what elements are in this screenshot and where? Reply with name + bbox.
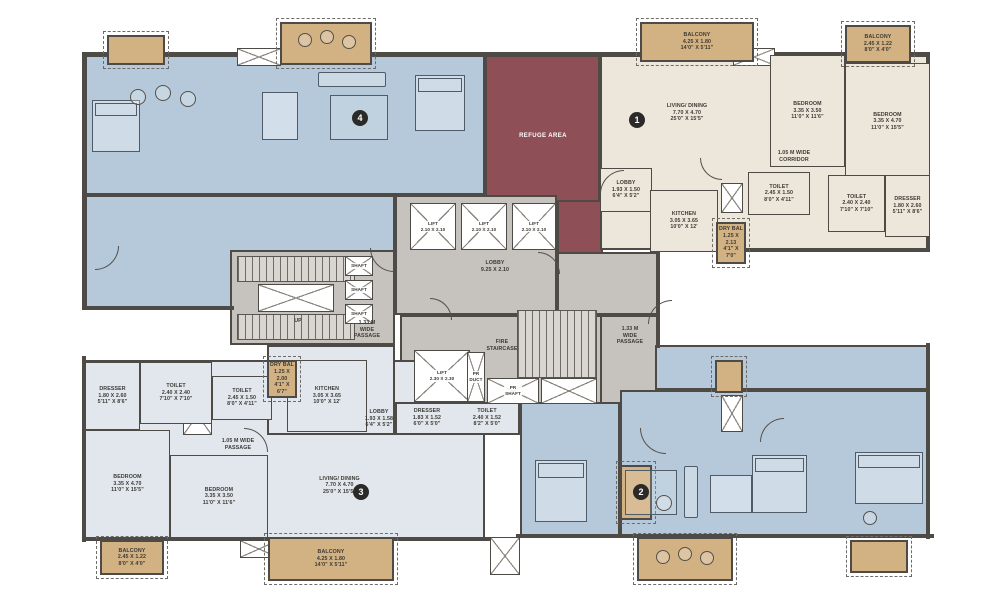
room-label: DRESSER1.83 X 1.526'0" X 5'0" bbox=[413, 408, 441, 428]
sofa-icon bbox=[684, 466, 698, 518]
room-label: LIVING/ DINING7.70 X 4.7025'0" X 15'5" bbox=[667, 103, 708, 123]
room-label: 1.33 MWIDEPASSAGE bbox=[617, 326, 643, 346]
room-fire-staircase-label: FIRESTAIRCASE bbox=[476, 336, 528, 356]
chair-icon bbox=[656, 495, 672, 511]
room-label: BEDROOM3.35 X 4.7011'0" X 15'5" bbox=[111, 474, 144, 494]
balcony-unit2-dry-balcony-upper bbox=[715, 360, 743, 393]
duct-box-2 bbox=[237, 48, 281, 66]
room-label: BEDROOM3.35 X 3.5011'0" X 11'6" bbox=[203, 487, 235, 507]
unit4-bottom-wall bbox=[82, 306, 234, 310]
room-label: LIFT2.10 X 2.10 bbox=[420, 221, 447, 232]
room-label: BALCONY2.45 X 1.228'0" X 4'0" bbox=[118, 548, 146, 568]
room-refuge-area-label: REFUGE AREA bbox=[488, 130, 598, 144]
bed-icon bbox=[415, 75, 465, 131]
room-unit3-toilet-1: TOILET2.40 X 2.407'10" X 7'10" bbox=[140, 362, 212, 424]
chair-icon bbox=[342, 35, 356, 49]
room-unit3-dresser-2: DRESSER1.83 X 1.526'0" X 5'0" bbox=[398, 398, 456, 438]
room-unit3-living-dining: LIVING/ DINING7.70 X 4.7025'0" X 15'5" bbox=[252, 448, 427, 523]
zone-refuge-area-main bbox=[485, 55, 600, 202]
room-label: DRESSER1.80 X 2.605'11" X 8'6" bbox=[98, 386, 128, 406]
room-label: BALCONY4.25 X 1.8014'0" X 5'11" bbox=[315, 549, 348, 569]
room-label: DRESSER1.80 X 2.605'11" X 8'6" bbox=[893, 196, 923, 216]
chair-icon bbox=[863, 511, 877, 525]
pr-duct: PRDUCT bbox=[467, 352, 485, 402]
balcony-unit4-balcony-left bbox=[107, 35, 165, 65]
room-label: TOILET2.45 X 1.508'0" X 4'11" bbox=[227, 388, 257, 408]
room-label: TOILET2.40 X 2.407'10" X 7'10" bbox=[840, 194, 873, 214]
room-label: LIFT2.10 X 2.10 bbox=[521, 221, 548, 232]
room-unit3-toilet-2: TOILET2.45 X 1.508'0" X 4'11" bbox=[212, 376, 272, 420]
duct-box-8 bbox=[721, 395, 743, 432]
balcony-unit3-dry-balcony: DRY BAL1.25 X 2.004'1" X 6'7" bbox=[267, 360, 297, 398]
duct-box-7 bbox=[721, 183, 743, 213]
bed-icon bbox=[92, 100, 140, 152]
room-label: KITCHEN3.05 X 3.6510'0" X 12' bbox=[670, 211, 698, 231]
room-label: REFUGE AREA bbox=[519, 133, 567, 141]
unit-number-marker: 1 bbox=[629, 112, 645, 128]
room-unit1-toilet-2: TOILET2.40 X 2.407'10" X 7'10" bbox=[828, 175, 885, 232]
room-label: 1.05 M WIDECORRIDOR bbox=[778, 150, 811, 163]
room-core-passage-right-label: 1.33 MWIDEPASSAGE bbox=[602, 320, 658, 352]
room-label: LOBBY1.93 X 1.586'4" X 5'2" bbox=[365, 409, 393, 429]
lift-shaft-lift-2: LIFT2.10 X 2.10 bbox=[461, 203, 507, 250]
room-unit1-kitchen: KITCHEN3.05 X 3.6510'0" X 12' bbox=[650, 190, 718, 252]
duct-box-5 bbox=[490, 537, 520, 575]
room-unit3-dresser: DRESSER1.80 X 2.605'11" X 8'6" bbox=[85, 362, 140, 430]
balcony-unit3-balcony-mid: BALCONY4.25 X 1.8014'0" X 5'11" bbox=[268, 537, 394, 581]
balcony-unit1-dry-balcony: DRY BAL1.25 X 2.134'1" X 7'0" bbox=[716, 222, 746, 264]
left-upper-wall bbox=[82, 52, 86, 310]
floor-plan: LIFT2.10 X 2.10LIFT2.10 X 2.10LIFT2.10 X… bbox=[0, 0, 1000, 600]
main-stair-upper-flight bbox=[237, 256, 355, 282]
room-label: UP bbox=[294, 318, 302, 325]
room-unit3-lobby: LOBBY1.93 X 1.586'4" X 5'2" bbox=[355, 398, 403, 440]
chair-icon bbox=[656, 550, 670, 564]
right-lower-wall bbox=[926, 343, 930, 539]
unit-number-marker: 4 bbox=[352, 110, 368, 126]
duct-box-1 bbox=[541, 378, 597, 404]
shaft-1: SHAFT bbox=[345, 256, 373, 276]
room-label: PRSHAFT bbox=[504, 385, 522, 396]
bed-icon bbox=[752, 455, 807, 513]
room-label: BEDROOM3.35 X 3.5011'0" X 11'6" bbox=[791, 101, 823, 121]
room-label: BALCONY2.45 X 1.228'0" X 4'0" bbox=[864, 34, 892, 54]
dining-table-icon bbox=[262, 92, 298, 140]
zone-unit2-upper-wing bbox=[655, 345, 930, 390]
unit-number-marker: 3 bbox=[353, 484, 369, 500]
room-unit1-bedroom-2: BEDROOM3.35 X 4.7011'0" X 15'5" bbox=[845, 63, 930, 180]
room-label: 1.33 MWIDEPASSAGE bbox=[354, 320, 380, 340]
room-label: TOILET2.40 X 2.407'10" X 7'10" bbox=[160, 383, 193, 403]
room-label: BEDROOM3.35 X 4.7011'0" X 15'5" bbox=[871, 112, 904, 132]
room-label: SHAFT bbox=[350, 287, 368, 293]
lift-shaft-lift-1: LIFT2.10 X 2.10 bbox=[410, 203, 456, 250]
chair-icon bbox=[678, 547, 692, 561]
balcony-unit3-balcony-left: BALCONY2.45 X 1.228'0" X 4'0" bbox=[100, 540, 164, 575]
bed-icon bbox=[855, 452, 923, 504]
chair-icon bbox=[298, 33, 312, 47]
room-unit3-bedroom-1: BEDROOM3.35 X 4.7011'0" X 15'5" bbox=[85, 430, 170, 538]
stair-landing bbox=[258, 284, 334, 312]
dining-table-icon bbox=[710, 475, 752, 513]
chair-icon bbox=[130, 89, 146, 105]
chair-icon bbox=[155, 85, 171, 101]
balcony-unit2-balcony-right bbox=[850, 540, 908, 573]
room-label: BALCONY4.25 X 1.8014'0" X 5'11" bbox=[681, 32, 714, 52]
balcony-unit1-balcony-top: BALCONY4.25 X 1.8014'0" X 5'11" bbox=[640, 22, 754, 62]
bed-icon bbox=[535, 460, 587, 522]
zone-refuge-area-leg bbox=[557, 200, 603, 254]
room-unit1-corridor: 1.05 M WIDECORRIDOR bbox=[748, 148, 840, 166]
room-up-label: UP bbox=[286, 316, 310, 326]
room-label: TOILET2.40 X 1.528'2" X 5'0" bbox=[473, 408, 501, 428]
chair-icon bbox=[320, 30, 334, 44]
room-label: FIRESTAIRCASE bbox=[486, 339, 517, 352]
zone-core-lift-lobby-b bbox=[557, 252, 660, 315]
room-unit3-toilet-3: TOILET2.40 X 1.528'2" X 5'0" bbox=[456, 398, 518, 438]
room-label: DRY BAL1.25 X 2.134'1" X 7'0" bbox=[718, 226, 744, 259]
lift-shaft-lift-4: LIFT2.30 X 2.30 bbox=[414, 350, 470, 402]
room-unit1-dresser: DRESSER1.80 X 2.605'11" X 8'6" bbox=[885, 175, 930, 237]
room-unit1-toilet-1: TOILET2.45 X 1.508'0" X 4'11" bbox=[748, 172, 810, 215]
room-label: PRDUCT bbox=[468, 371, 483, 382]
chair-icon bbox=[700, 551, 714, 565]
sofa-icon bbox=[318, 72, 386, 87]
room-label: LOBBY9.25 X 2.10 bbox=[481, 260, 509, 273]
unit-number-marker: 2 bbox=[633, 484, 649, 500]
fire-stair-flight bbox=[517, 310, 597, 378]
room-label: SHAFT bbox=[350, 263, 368, 269]
room-label: DRY BAL1.25 X 2.004'1" X 6'7" bbox=[269, 362, 295, 395]
room-label: KITCHEN3.05 X 3.6510'0" X 12' bbox=[313, 386, 341, 406]
shaft-2: SHAFT bbox=[345, 280, 373, 300]
room-label: LIFT2.10 X 2.10 bbox=[471, 221, 498, 232]
room-core-passage-left: 1.33 MWIDEPASSAGE bbox=[340, 314, 394, 346]
lift-shaft-lift-3: LIFT2.10 X 2.10 bbox=[512, 203, 556, 250]
room-label: TOILET2.45 X 1.508'0" X 4'11" bbox=[764, 184, 794, 204]
balcony-unit1-balcony-right: BALCONY2.45 X 1.228'0" X 4'0" bbox=[845, 25, 911, 63]
chair-icon bbox=[180, 91, 196, 107]
room-label: LIFT2.30 X 2.30 bbox=[429, 370, 456, 381]
